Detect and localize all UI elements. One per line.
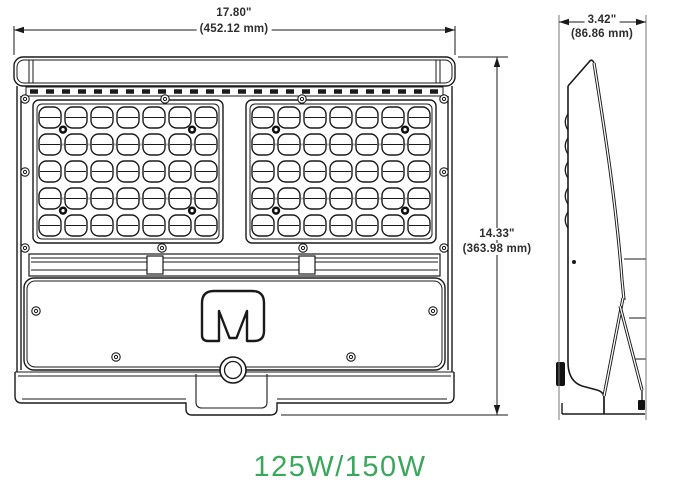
- hinge-strip: [29, 254, 440, 276]
- wattage-label: 125W/150W: [253, 451, 426, 484]
- technical-drawing-page: 17.80" (452.12 mm) 14.33" (363.98 mm) 3.…: [0, 0, 680, 497]
- led-lens-grid: [39, 107, 430, 236]
- heatsink-vent-strip: [26, 87, 443, 96]
- depth-dimension-mm: (86.86 mm): [568, 28, 636, 40]
- width-dimension-inches: 17.80": [213, 7, 254, 19]
- width-dimension-mm: (452.12 mm): [197, 23, 272, 35]
- height-dimension-mm: (363.98 mm): [460, 243, 535, 255]
- depth-dimension-inches: 3.42": [585, 14, 620, 26]
- side-latch-tab: [556, 362, 565, 386]
- brand-logo: [202, 291, 264, 341]
- mounting-bracket: [562, 259, 646, 414]
- side-view: [556, 60, 646, 414]
- side-profile-back-curve: [594, 63, 624, 300]
- front-view: [14, 57, 455, 415]
- side-profile-front-edge: [568, 86, 604, 414]
- height-dimension-inches: 14.33": [476, 228, 517, 240]
- top-cap: [14, 57, 455, 86]
- luminaire-drawing: [0, 0, 680, 497]
